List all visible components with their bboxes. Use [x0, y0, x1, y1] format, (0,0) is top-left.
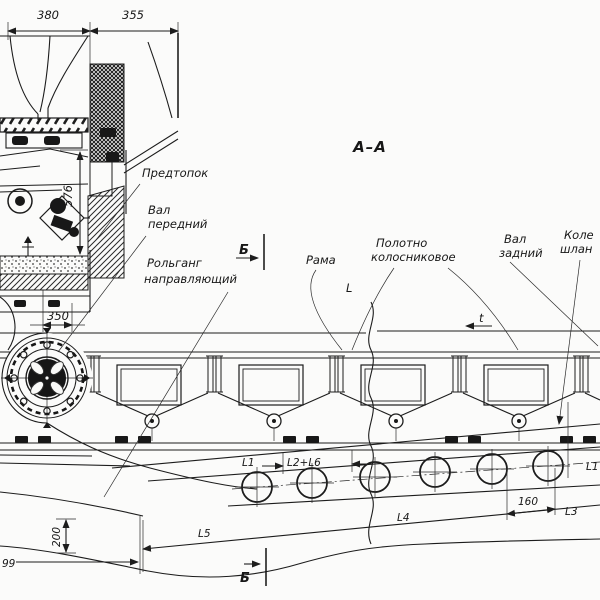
dim-L2-L6: L2+L6 — [287, 457, 321, 469]
engineering-drawing: А–А 380 355 576 350 Предтопок Вал передн… — [0, 0, 600, 600]
label-wheel-clipped-line1: Коле — [564, 228, 594, 242]
label-frame: Рама — [306, 253, 336, 267]
dim-L: L — [346, 281, 352, 295]
dim-t: t — [479, 311, 484, 325]
label-grate-belt-line2: колосниковое — [371, 250, 456, 264]
label-rollgang-line2: направляющий — [144, 272, 237, 286]
main-side-elevation — [0, 297, 600, 577]
rail-clips — [15, 436, 596, 443]
label-pre-furnace: Предтопок — [142, 166, 208, 180]
label-rear-shaft-line2: задний — [499, 246, 543, 260]
dim-160: 160 — [518, 496, 538, 508]
dim-99: 99 — [2, 558, 16, 570]
dim-576: 576 — [61, 185, 75, 207]
dim-380: 380 — [37, 8, 59, 22]
dim-L4: L4 — [397, 512, 410, 524]
break-wavy-line — [369, 302, 374, 544]
section-letter-bottom: Б — [240, 571, 250, 586]
label-rear-shaft-line1: Вал — [504, 232, 527, 246]
label-front-shaft-line1: Вал — [148, 203, 171, 217]
foundation-bands — [0, 236, 90, 312]
view-title: А–А — [352, 138, 387, 156]
dim-L5: L5 — [198, 528, 211, 540]
dimension-lines-main — [16, 234, 600, 586]
front-sprocket-wheel — [1, 328, 93, 428]
label-rollgang-line1: Рольганг — [147, 256, 203, 270]
feed-hopper — [0, 33, 178, 120]
ground-wavy-line — [0, 539, 600, 577]
grate-frame-modules — [84, 356, 600, 441]
dim-L1-right: L1 — [586, 461, 599, 473]
dim-200: 200 — [51, 527, 63, 547]
section-letter-top: Б — [239, 243, 249, 258]
label-wheel-clipped-line2: шлан — [560, 242, 593, 256]
dim-L1: L1 — [242, 457, 255, 469]
label-front-shaft-line2: передний — [148, 217, 208, 231]
front-drive-machinery — [0, 118, 90, 240]
dim-L3: L3 — [565, 506, 578, 518]
dim-350: 350 — [47, 309, 69, 323]
label-grate-belt-line1: Полотно — [376, 236, 427, 250]
dim-355: 355 — [122, 8, 144, 22]
top-width-dimension-lines — [8, 22, 178, 64]
